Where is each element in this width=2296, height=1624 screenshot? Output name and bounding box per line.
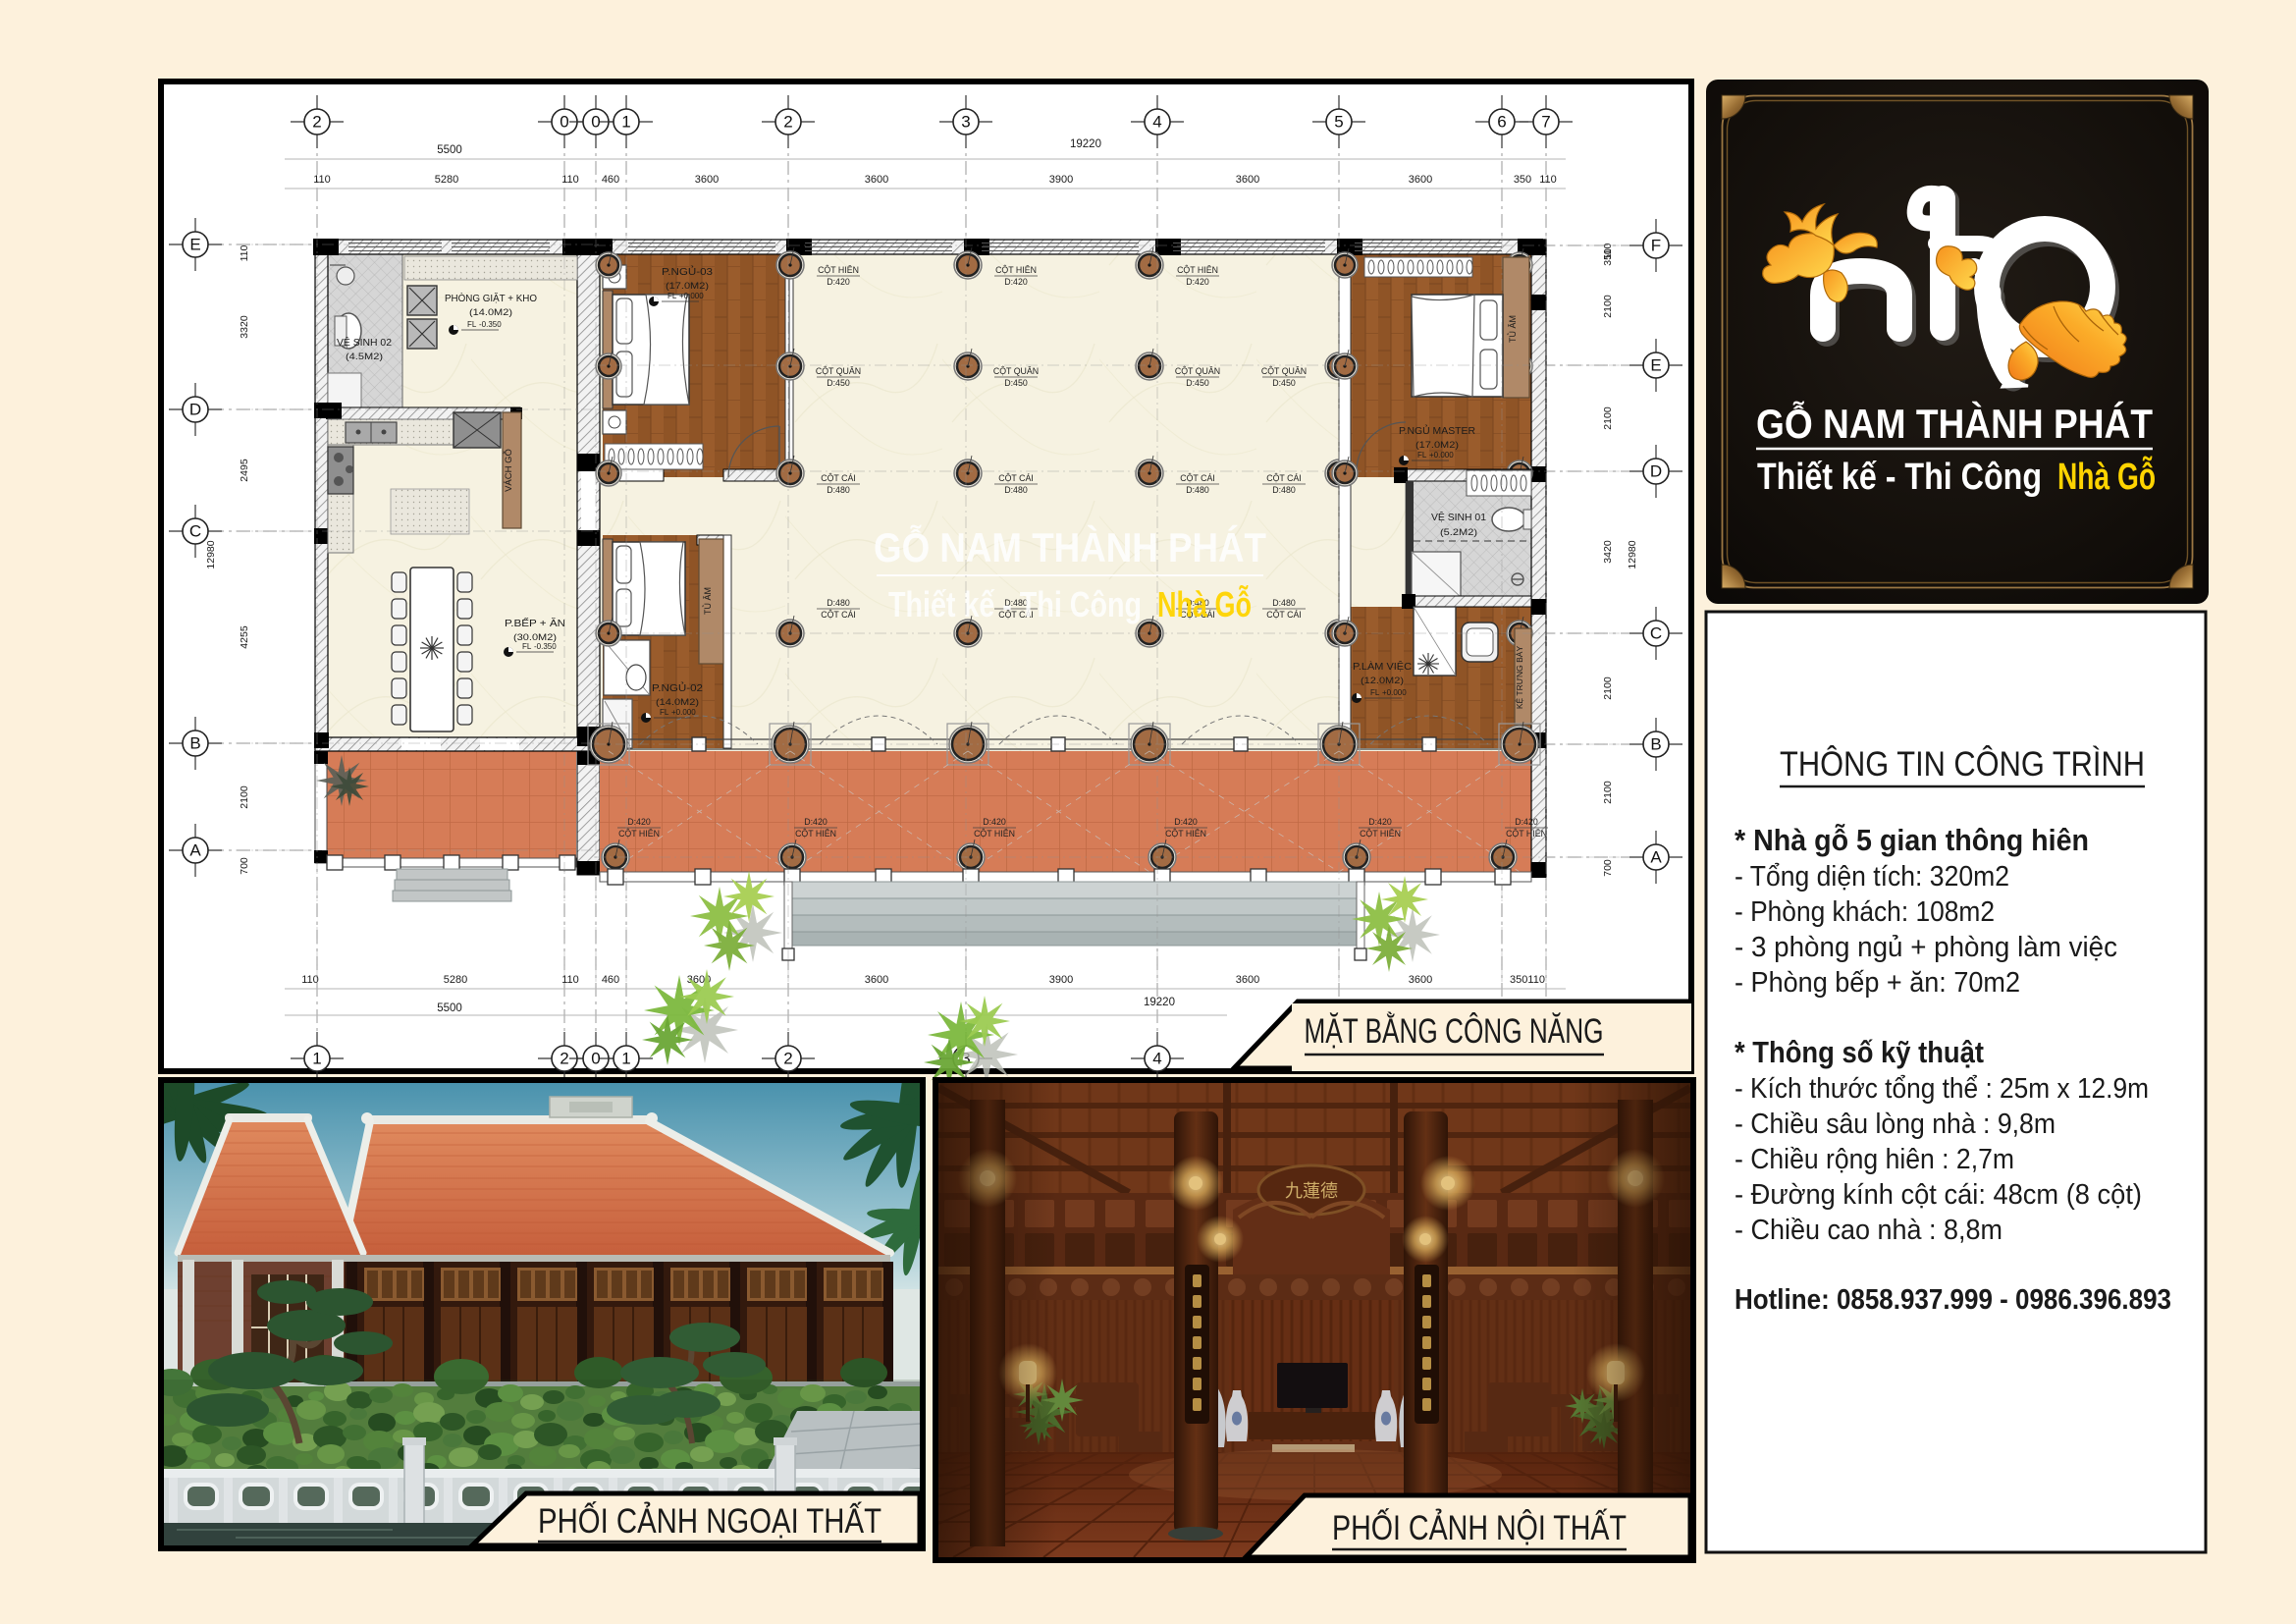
svg-text:CỘT CÁI: CỘT CÁI: [821, 473, 856, 483]
svg-text:(12.0M2): (12.0M2): [1361, 676, 1404, 686]
svg-text:MẶT BẰNG CÔNG NĂNG: MẶT BẰNG CÔNG NĂNG: [1305, 1011, 1604, 1051]
svg-text:2: 2: [783, 113, 792, 132]
svg-text:CỘT CÁI: CỘT CÁI: [1180, 473, 1215, 483]
svg-text:1: 1: [621, 113, 630, 132]
svg-text:2100: 2100: [1602, 781, 1614, 804]
svg-text:2: 2: [560, 1050, 568, 1068]
svg-text:D:420: D:420: [1515, 817, 1538, 827]
svg-text:KỆ TRƯNG BÀY: KỆ TRƯNG BÀY: [1515, 646, 1524, 710]
svg-text:460: 460: [602, 974, 619, 986]
svg-text:4: 4: [1152, 1050, 1161, 1068]
svg-text:TỦ ÂM: TỦ ÂM: [702, 587, 713, 615]
svg-text:12980: 12980: [205, 540, 217, 568]
svg-text:CỘT QUÂN: CỘT QUÂN: [1175, 366, 1220, 376]
svg-text:2100: 2100: [1602, 406, 1614, 430]
svg-text:D:480: D:480: [1004, 485, 1028, 495]
svg-text:3600: 3600: [865, 174, 888, 186]
svg-text:110: 110: [561, 174, 579, 186]
svg-text:(14.0M2): (14.0M2): [469, 307, 512, 318]
svg-text:3600: 3600: [695, 174, 719, 186]
svg-text:- Chiều sâu lòng nhà : 9,8m: - Chiều sâu lòng nhà : 9,8m: [1735, 1109, 2056, 1140]
svg-text:D:420: D:420: [804, 817, 828, 827]
svg-text:0: 0: [591, 1050, 600, 1068]
svg-text:5280: 5280: [435, 174, 458, 186]
svg-text:1: 1: [621, 1050, 630, 1068]
svg-text:CỘT QUÂN: CỘT QUÂN: [1261, 366, 1307, 376]
svg-text:C: C: [1650, 624, 1662, 643]
svg-text:6: 6: [1497, 113, 1506, 132]
svg-text:- Chiều cao nhà : 8,8m: - Chiều cao nhà : 8,8m: [1735, 1215, 2002, 1246]
svg-text:PHÒNG GIẶT + KHO: PHÒNG GIẶT + KHO: [445, 292, 537, 304]
svg-text:VÁCH GỖ: VÁCH GỖ: [503, 449, 514, 492]
svg-text:(17.0M2): (17.0M2): [1415, 440, 1459, 451]
svg-text:D:480: D:480: [1186, 485, 1209, 495]
svg-text:D:420: D:420: [1368, 817, 1392, 827]
svg-text:110: 110: [1539, 174, 1557, 186]
svg-text:3600: 3600: [1236, 174, 1259, 186]
svg-text:460: 460: [602, 174, 619, 186]
svg-text:19220: 19220: [1144, 997, 1175, 1008]
svg-text:FL: FL: [1370, 688, 1380, 697]
svg-text:5: 5: [1334, 113, 1343, 132]
svg-text:- Phòng khách: 108m2: - Phòng khách: 108m2: [1735, 896, 1995, 928]
svg-text:A: A: [189, 841, 201, 860]
svg-text:D: D: [1650, 462, 1662, 481]
svg-text:F: F: [1651, 237, 1661, 255]
svg-text:3900: 3900: [1049, 174, 1073, 186]
svg-text:3420: 3420: [1602, 540, 1614, 564]
svg-text:4: 4: [1152, 113, 1161, 132]
svg-text:A: A: [1650, 848, 1662, 867]
svg-text:THÔNG TIN CÔNG TRÌNH: THÔNG TIN CÔNG TRÌNH: [1780, 745, 2145, 784]
svg-text:D:420: D:420: [627, 817, 651, 827]
svg-text:3600: 3600: [1236, 974, 1259, 986]
svg-text:+0.000: +0.000: [1382, 688, 1407, 697]
svg-text:D:480: D:480: [1272, 485, 1296, 495]
svg-text:CỘT CÁI: CỘT CÁI: [998, 473, 1034, 483]
svg-text:2100: 2100: [239, 785, 250, 809]
svg-text:GỖ NAM THÀNH PHÁT: GỖ NAM THÀNH PHÁT: [1756, 400, 2153, 447]
svg-text:4255: 4255: [239, 625, 250, 649]
svg-text:5280: 5280: [444, 974, 467, 986]
svg-text:VỆ SINH 02: VỆ SINH 02: [337, 336, 392, 349]
svg-text:CỘT HIÊN: CỘT HIÊN: [1177, 265, 1218, 275]
svg-text:- Tổng diện tích: 320m2: - Tổng diện tích: 320m2: [1735, 861, 2009, 893]
svg-text:* Thông số kỹ thuật: * Thông số kỹ thuật: [1735, 1035, 1984, 1069]
svg-text:-0.350: -0.350: [479, 320, 502, 329]
svg-text:3900: 3900: [1049, 974, 1073, 986]
svg-text:- 3 phòng ngủ + phòng làm việc: - 3 phòng ngủ + phòng làm việc: [1735, 932, 2117, 963]
svg-text:110: 110: [301, 974, 319, 986]
svg-text:B: B: [189, 734, 200, 753]
svg-text:C: C: [189, 522, 201, 541]
svg-text:3600: 3600: [865, 974, 888, 986]
svg-text:110: 110: [239, 244, 250, 261]
svg-text:D:450: D:450: [827, 378, 850, 388]
svg-text:0: 0: [560, 113, 568, 132]
svg-text:CỘT HIÊN: CỘT HIÊN: [1165, 829, 1206, 839]
svg-text:E: E: [189, 236, 200, 254]
svg-text:CỘT CÁI: CỘT CÁI: [1266, 610, 1302, 620]
svg-text:CỘT HIÊN: CỘT HIÊN: [818, 265, 859, 275]
svg-text:(4.5M2): (4.5M2): [346, 352, 383, 362]
svg-text:+0.000: +0.000: [1429, 451, 1454, 460]
svg-text:FL: FL: [522, 642, 532, 651]
svg-text:VỆ SINH 01: VỆ SINH 01: [1431, 511, 1486, 523]
svg-text:5500: 5500: [437, 144, 462, 156]
svg-text:P.LÀM VIỆC: P.LÀM VIỆC: [1353, 660, 1412, 673]
svg-text:P.BẾP + ĂN: P.BẾP + ĂN: [505, 617, 565, 629]
svg-text:FL: FL: [667, 292, 677, 300]
svg-text:D:450: D:450: [1186, 378, 1209, 388]
svg-text:- Đường kính cột cái: 48cm (8: - Đường kính cột cái: 48cm (8 cột): [1735, 1179, 2142, 1211]
svg-text:CỘT QUÂN: CỘT QUÂN: [993, 366, 1039, 376]
svg-text:3320: 3320: [239, 315, 250, 339]
svg-text:CỘT HIÊN: CỘT HIÊN: [974, 829, 1015, 839]
svg-text:0: 0: [591, 113, 600, 132]
svg-text:700: 700: [239, 857, 250, 875]
svg-text:CỘT HIÊN: CỘT HIÊN: [618, 829, 660, 839]
svg-text:B: B: [1650, 735, 1661, 754]
svg-text:-0.350: -0.350: [534, 642, 557, 651]
svg-text:D:420: D:420: [1174, 817, 1198, 827]
svg-text:FL: FL: [1417, 451, 1427, 460]
svg-text:2: 2: [312, 113, 321, 132]
svg-text:CỘT HIÊN: CỘT HIÊN: [995, 265, 1037, 275]
svg-text:FL: FL: [660, 708, 669, 717]
svg-text:PHỐI CẢNH NGOẠI THẤT: PHỐI CẢNH NGOẠI THẤT: [538, 1501, 881, 1541]
svg-text:Hotline: 0858.937.999 - 0986.3: Hotline: 0858.937.999 - 0986.396.893: [1735, 1284, 2171, 1316]
svg-text:7: 7: [1541, 113, 1550, 132]
svg-text:D:450: D:450: [1004, 378, 1028, 388]
svg-text:+0.000: +0.000: [671, 708, 696, 717]
svg-text:- Kích thước tổng thể : 25m x: - Kích thước tổng thể : 25m x 12.9m: [1735, 1073, 2149, 1105]
svg-text:- Phòng bếp + ăn: 70m2: - Phòng bếp + ăn: 70m2: [1735, 967, 2020, 999]
svg-text:P.NGỦ-03: P.NGỦ-03: [662, 265, 713, 278]
svg-text:GỖ NAM THÀNH PHÁT: GỖ NAM THÀNH PHÁT: [874, 523, 1266, 570]
svg-text:CỘT CÁI: CỘT CÁI: [1266, 473, 1302, 483]
svg-text:Thiết kế - Thi Công: Thiết kế - Thi Công: [1757, 457, 2042, 498]
svg-text:5500: 5500: [437, 1002, 462, 1014]
svg-text:3: 3: [961, 113, 970, 132]
svg-text:Nhà Gỗ: Nhà Gỗ: [1157, 584, 1252, 624]
svg-text:110: 110: [313, 174, 331, 186]
svg-text:CỘT CÁI: CỘT CÁI: [821, 610, 856, 620]
svg-text:(14.0M2): (14.0M2): [656, 697, 699, 708]
svg-text:P.NGỦ-02: P.NGỦ-02: [652, 681, 703, 694]
svg-text:Nhà Gỗ: Nhà Gỗ: [2057, 455, 2156, 498]
svg-text:D:480: D:480: [827, 485, 850, 495]
svg-text:D:420: D:420: [827, 277, 850, 287]
svg-text:Thiết kế - Thi Công: Thiết kế - Thi Công: [888, 584, 1142, 624]
svg-text:E: E: [1650, 356, 1661, 375]
svg-text:3600: 3600: [1409, 174, 1432, 186]
svg-text:CỘT HIÊN: CỘT HIÊN: [795, 829, 836, 839]
svg-text:* Nhà gỗ 5 gian thông hiên: * Nhà gỗ 5 gian thông hiên: [1735, 823, 2089, 857]
svg-text:D:420: D:420: [1004, 277, 1028, 287]
svg-text:TỦ ÂM: TỦ ÂM: [1507, 315, 1518, 343]
svg-text:(17.0M2): (17.0M2): [666, 281, 709, 292]
svg-text:D:420: D:420: [1186, 277, 1209, 287]
svg-text:700: 700: [1602, 859, 1614, 877]
svg-text:(5.2M2): (5.2M2): [1440, 527, 1477, 538]
svg-text:19220: 19220: [1070, 138, 1101, 150]
svg-text:2: 2: [783, 1050, 792, 1068]
svg-text:D:420: D:420: [983, 817, 1006, 827]
svg-text:+0.000: +0.000: [679, 292, 704, 300]
svg-text:D:480: D:480: [1272, 598, 1296, 608]
svg-text:3600: 3600: [1409, 974, 1432, 986]
svg-text:P.NGỦ MASTER: P.NGỦ MASTER: [1399, 424, 1475, 437]
svg-text:CỘT HIÊN: CỘT HIÊN: [1360, 829, 1401, 839]
svg-text:D:450: D:450: [1272, 378, 1296, 388]
svg-text:350: 350: [1514, 174, 1531, 186]
svg-text:2100: 2100: [1602, 677, 1614, 700]
svg-text:1: 1: [312, 1050, 321, 1068]
svg-text:CỘT QUÂN: CỘT QUÂN: [816, 366, 861, 376]
svg-text:CỘT HIÊN: CỘT HIÊN: [1506, 829, 1547, 839]
svg-text:- Chiều rộng hiên : 2,7m: - Chiều rộng hiên : 2,7m: [1735, 1144, 2014, 1175]
svg-text:2100: 2100: [1602, 295, 1614, 318]
svg-text:12980: 12980: [1627, 540, 1638, 568]
svg-text:FL: FL: [467, 320, 477, 329]
svg-text:D:480: D:480: [827, 598, 850, 608]
svg-text:350110: 350110: [1510, 974, 1545, 986]
svg-text:PHỐI CẢNH NỘI THẤT: PHỐI CẢNH NỘI THẤT: [1332, 1508, 1627, 1547]
svg-text:2495: 2495: [239, 459, 250, 482]
svg-text:D: D: [189, 401, 201, 419]
